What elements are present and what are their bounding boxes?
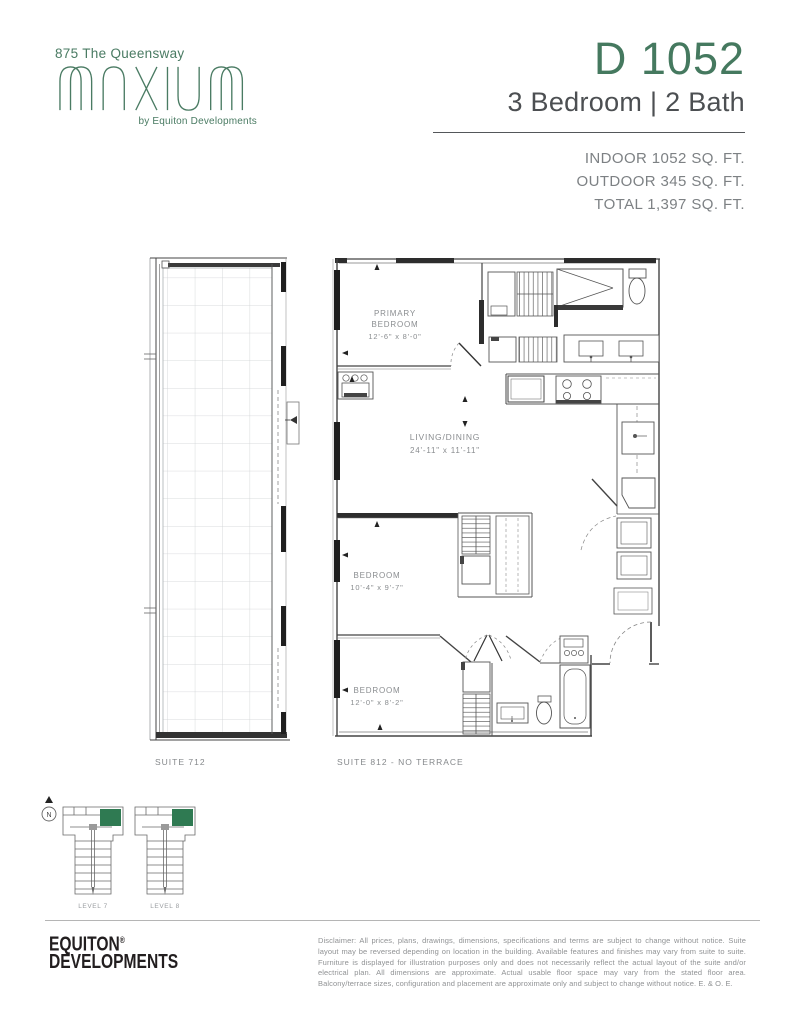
keyplan-level-7: LEVEL 7 bbox=[60, 797, 130, 912]
title-divider bbox=[433, 132, 745, 133]
vanity-2 bbox=[497, 703, 528, 723]
bedroom3-dims: 12'-0" x 8'-2" bbox=[350, 698, 403, 707]
unit-plan: PRIMARY BEDROOM 12'-6" x 8'-0" LIVING/DI… bbox=[333, 258, 660, 736]
entry-door bbox=[610, 622, 651, 663]
toilet-2 bbox=[537, 696, 552, 724]
suite-712-label: SUITE 712 bbox=[155, 757, 206, 767]
unit-highlight bbox=[100, 809, 121, 826]
primary-bedroom-dims: 12'-6" x 8'-0" bbox=[368, 332, 421, 341]
level-8-label: LEVEL 8 bbox=[150, 903, 180, 910]
laundry-closet bbox=[581, 516, 652, 614]
toilet bbox=[629, 269, 646, 304]
brand-line-2: DEVELOPMENTS bbox=[49, 954, 178, 971]
equiton-developments-logo: EQUITON® DEVELOPMENTS bbox=[49, 932, 178, 971]
unit-outer-walls bbox=[333, 258, 660, 736]
hall-doors bbox=[440, 635, 564, 662]
outdoor-area: OUTDOOR 345 SQ. FT. bbox=[433, 170, 745, 193]
stove bbox=[556, 376, 601, 403]
bedroom2-label: BEDROOM bbox=[354, 571, 401, 580]
suite-812-label: SUITE 812 - NO TERRACE bbox=[337, 757, 464, 767]
side-sink-unit bbox=[338, 372, 373, 399]
bedroom3-closet bbox=[461, 662, 490, 734]
area-stats: INDOOR 1052 SQ. FT. OUTDOOR 345 SQ. FT. … bbox=[433, 147, 745, 216]
double-vanity bbox=[564, 335, 659, 362]
terrace-tile-grid bbox=[163, 268, 272, 736]
bathtub-2 bbox=[560, 665, 590, 728]
washer bbox=[560, 636, 588, 663]
floor-plan-drawing: PRIMARY BEDROOM 12'-6" x 8'-0" LIVING/DI… bbox=[140, 250, 675, 775]
disclaimer-text: Disclaimer: All prices, plans, drawings,… bbox=[318, 936, 746, 990]
primary-bedroom-label-2: BEDROOM bbox=[372, 320, 419, 329]
registered-mark: ® bbox=[120, 935, 125, 945]
logo-byline: by Equiton Developments bbox=[55, 116, 257, 127]
unit-code: D 1052 bbox=[433, 36, 745, 82]
terrace-plan bbox=[144, 258, 299, 740]
primary-bedroom-label-1: PRIMARY bbox=[374, 309, 416, 318]
unit-highlight bbox=[172, 809, 193, 826]
bedroom3-label: BEDROOM bbox=[354, 686, 401, 695]
terrace-window-bars bbox=[281, 262, 286, 734]
terrace-door-marker bbox=[285, 402, 299, 444]
living-dining-label: LIVING/DINING bbox=[410, 432, 480, 442]
keyplan-level-8: LEVEL 8 bbox=[132, 797, 202, 912]
unit-title-block: D 1052 3 Bedroom | 2 Bath INDOOR 1052 SQ… bbox=[433, 36, 745, 216]
living-dining-dims: 24'-11" x 11'-11" bbox=[410, 446, 480, 455]
kitchen-sink bbox=[622, 422, 654, 454]
primary-bath-fixtures bbox=[488, 269, 659, 362]
level-7-label: LEVEL 7 bbox=[78, 903, 108, 910]
bathtub bbox=[554, 269, 623, 327]
bedroom2-dims: 10'-4" x 9'-7" bbox=[350, 583, 403, 592]
second-bathroom bbox=[492, 636, 590, 736]
project-name: 875 The Queensway bbox=[55, 46, 257, 61]
fridge bbox=[622, 478, 655, 508]
footer-divider bbox=[45, 920, 760, 921]
total-area: TOTAL 1,397 SQ. FT. bbox=[433, 193, 745, 216]
kitchen bbox=[506, 374, 659, 514]
unit-type: 3 Bedroom | 2 Bath bbox=[433, 87, 745, 118]
north-label: N bbox=[46, 812, 51, 819]
north-arrow-icon: N bbox=[38, 794, 60, 830]
maxium-logo-icon bbox=[55, 65, 255, 113]
indoor-area: INDOOR 1052 SQ. FT. bbox=[433, 147, 745, 170]
brand-logo-block: 875 The Queensway by Equiton Development… bbox=[55, 46, 257, 127]
